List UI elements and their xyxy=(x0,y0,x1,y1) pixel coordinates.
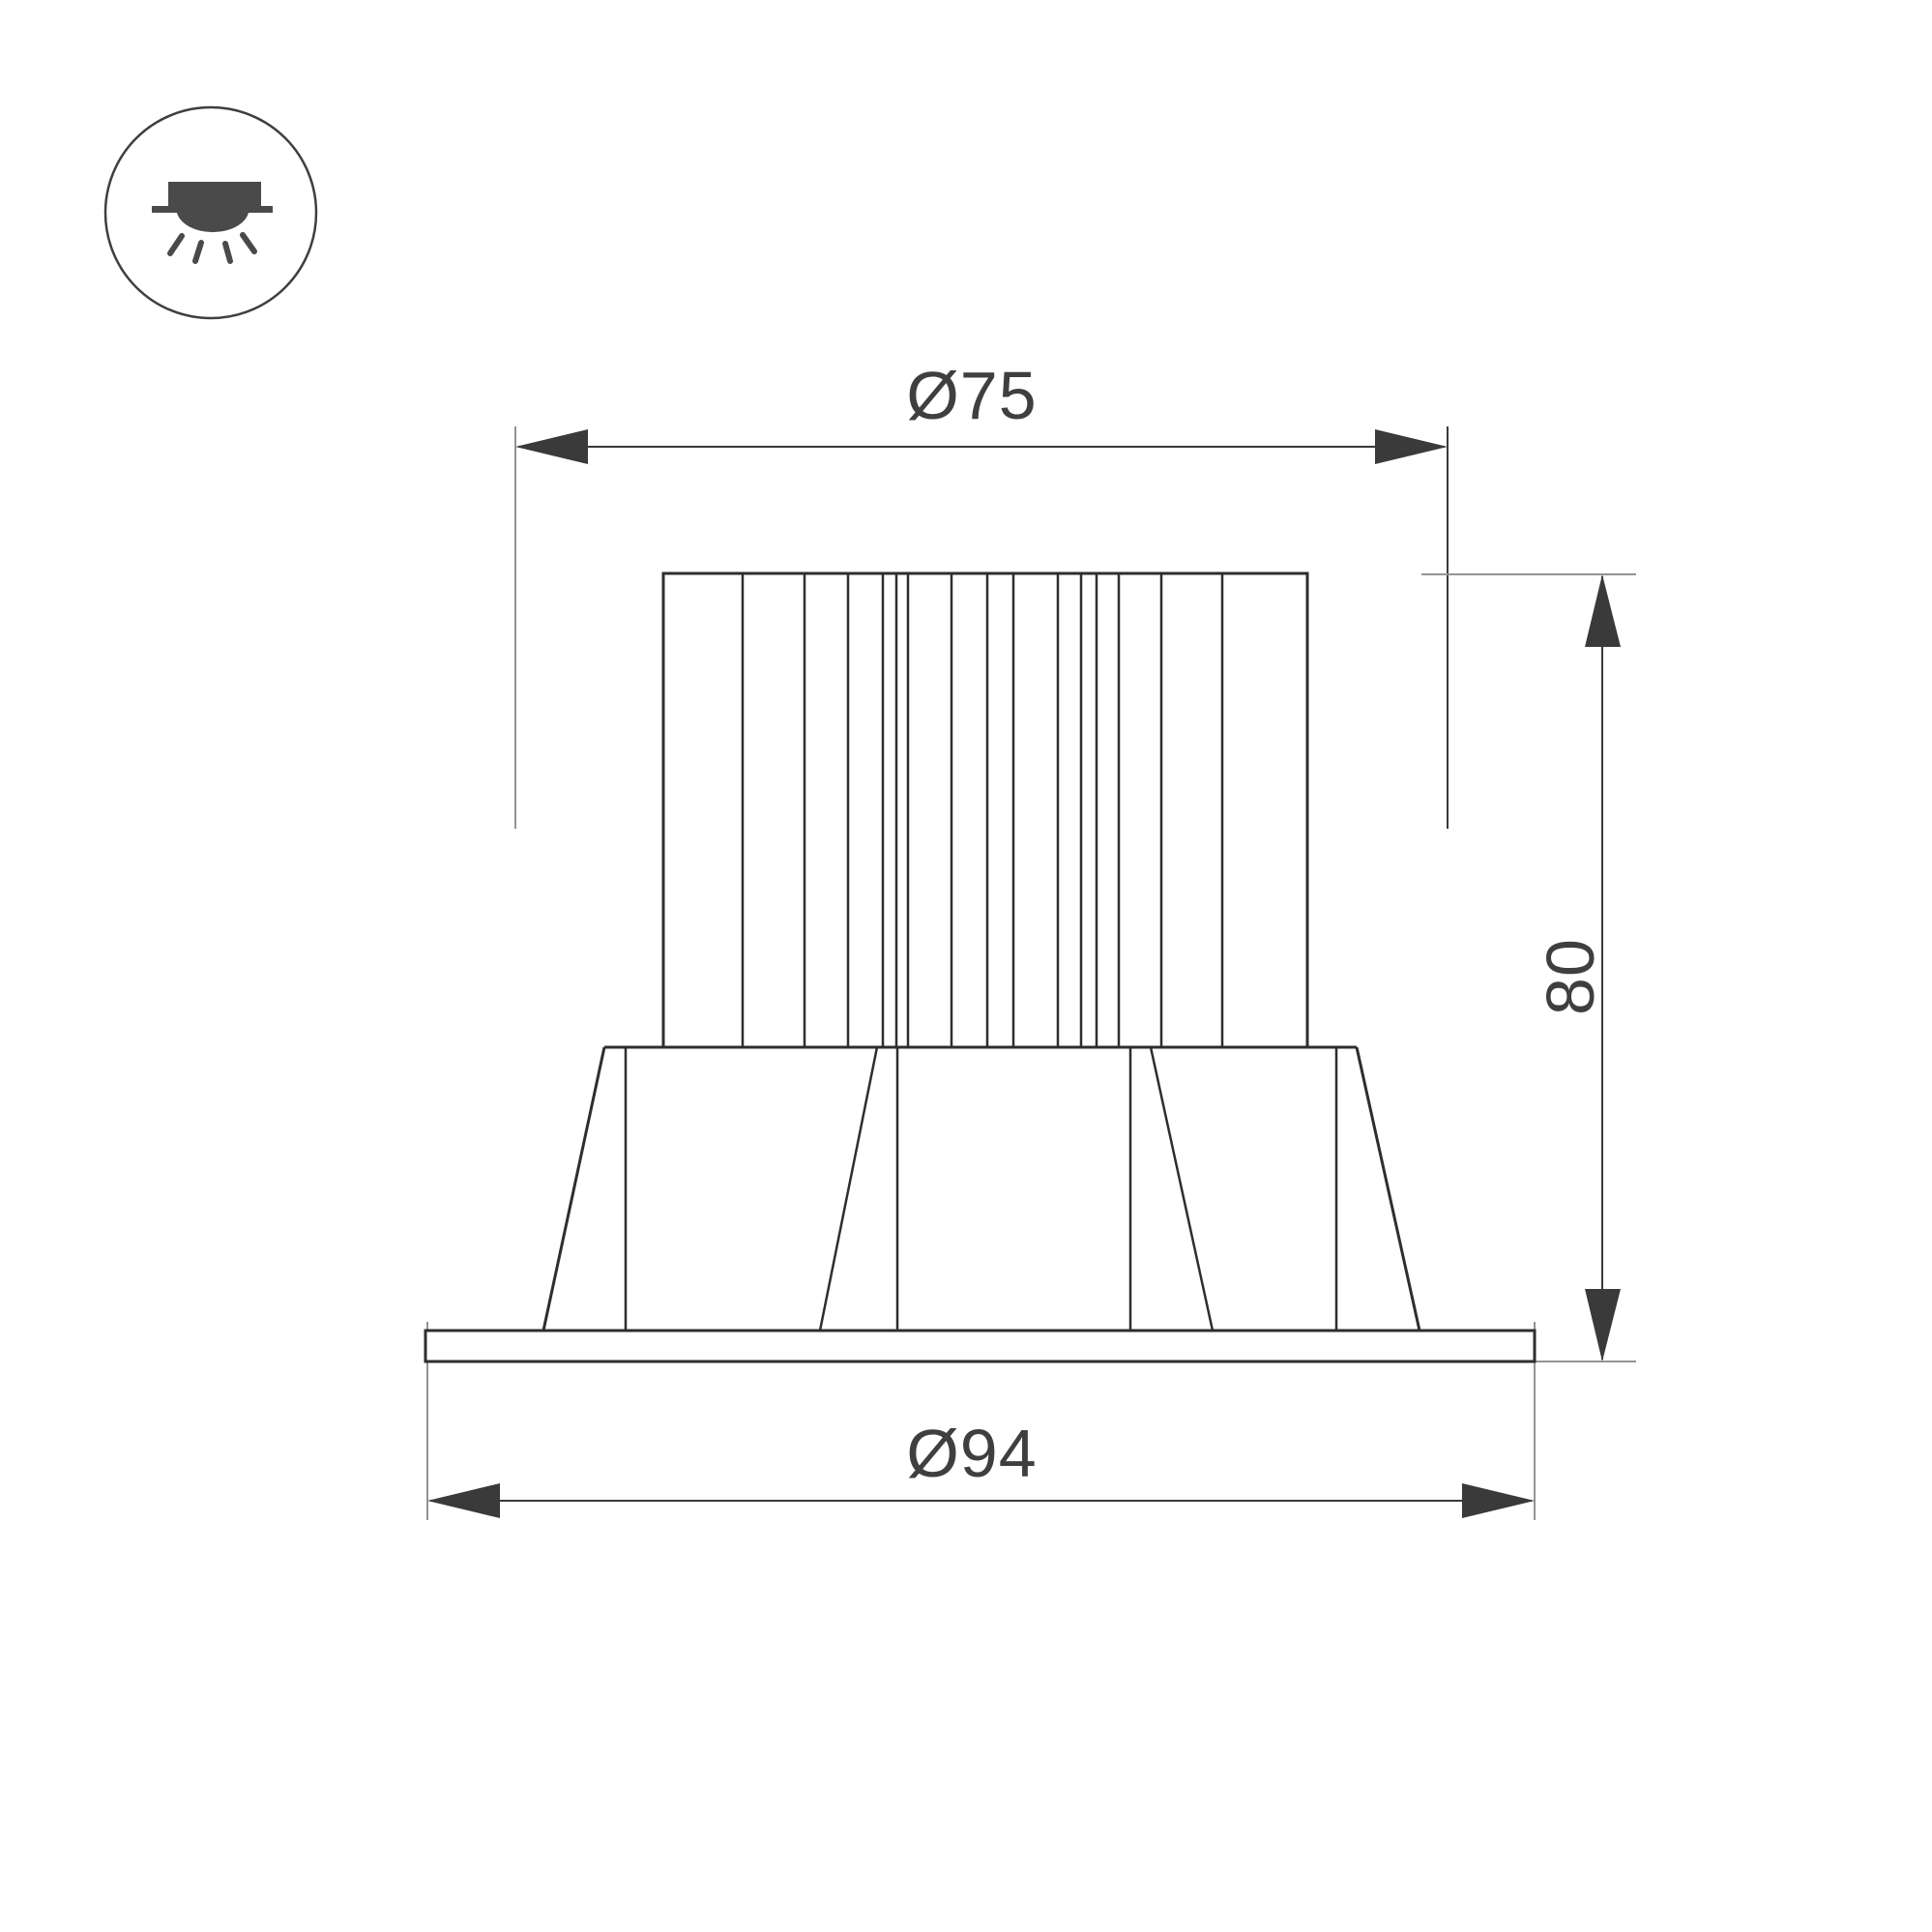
arrowhead-up xyxy=(1585,574,1621,647)
drawing-canvas: Ø75 80 Ø94 xyxy=(0,0,1932,1932)
arrowhead-left xyxy=(427,1483,500,1518)
housing-facet-line xyxy=(1151,1047,1213,1331)
mounting-flange xyxy=(425,1331,1535,1361)
housing-facet-line xyxy=(820,1047,877,1331)
icon-ceiling-line xyxy=(152,206,273,213)
dim-label-bottom-diameter: Ø94 xyxy=(906,1416,1037,1491)
icon-lamp-body xyxy=(168,182,261,207)
heatsink-outline xyxy=(663,573,1307,1047)
housing-left-edge xyxy=(543,1047,604,1331)
arrowhead-left xyxy=(515,429,588,464)
dim-label-top-diameter: Ø75 xyxy=(906,358,1037,433)
dimension-drawing: Ø75 80 Ø94 xyxy=(0,0,1932,1932)
luminaire-body xyxy=(425,573,1535,1361)
housing-right-edge xyxy=(1357,1047,1420,1331)
arrowhead-right xyxy=(1375,429,1448,464)
dim-label-height: 80 xyxy=(1533,938,1608,1015)
recessed-downlight-icon xyxy=(105,107,316,318)
dimension-top-diameter: Ø75 xyxy=(515,358,1448,464)
housing-cone xyxy=(543,1047,1420,1331)
dimension-bottom-diameter: Ø94 xyxy=(427,1416,1535,1518)
arrowhead-down xyxy=(1585,1289,1621,1361)
dimension-height: 80 xyxy=(1533,574,1621,1361)
arrowhead-right xyxy=(1462,1483,1535,1518)
